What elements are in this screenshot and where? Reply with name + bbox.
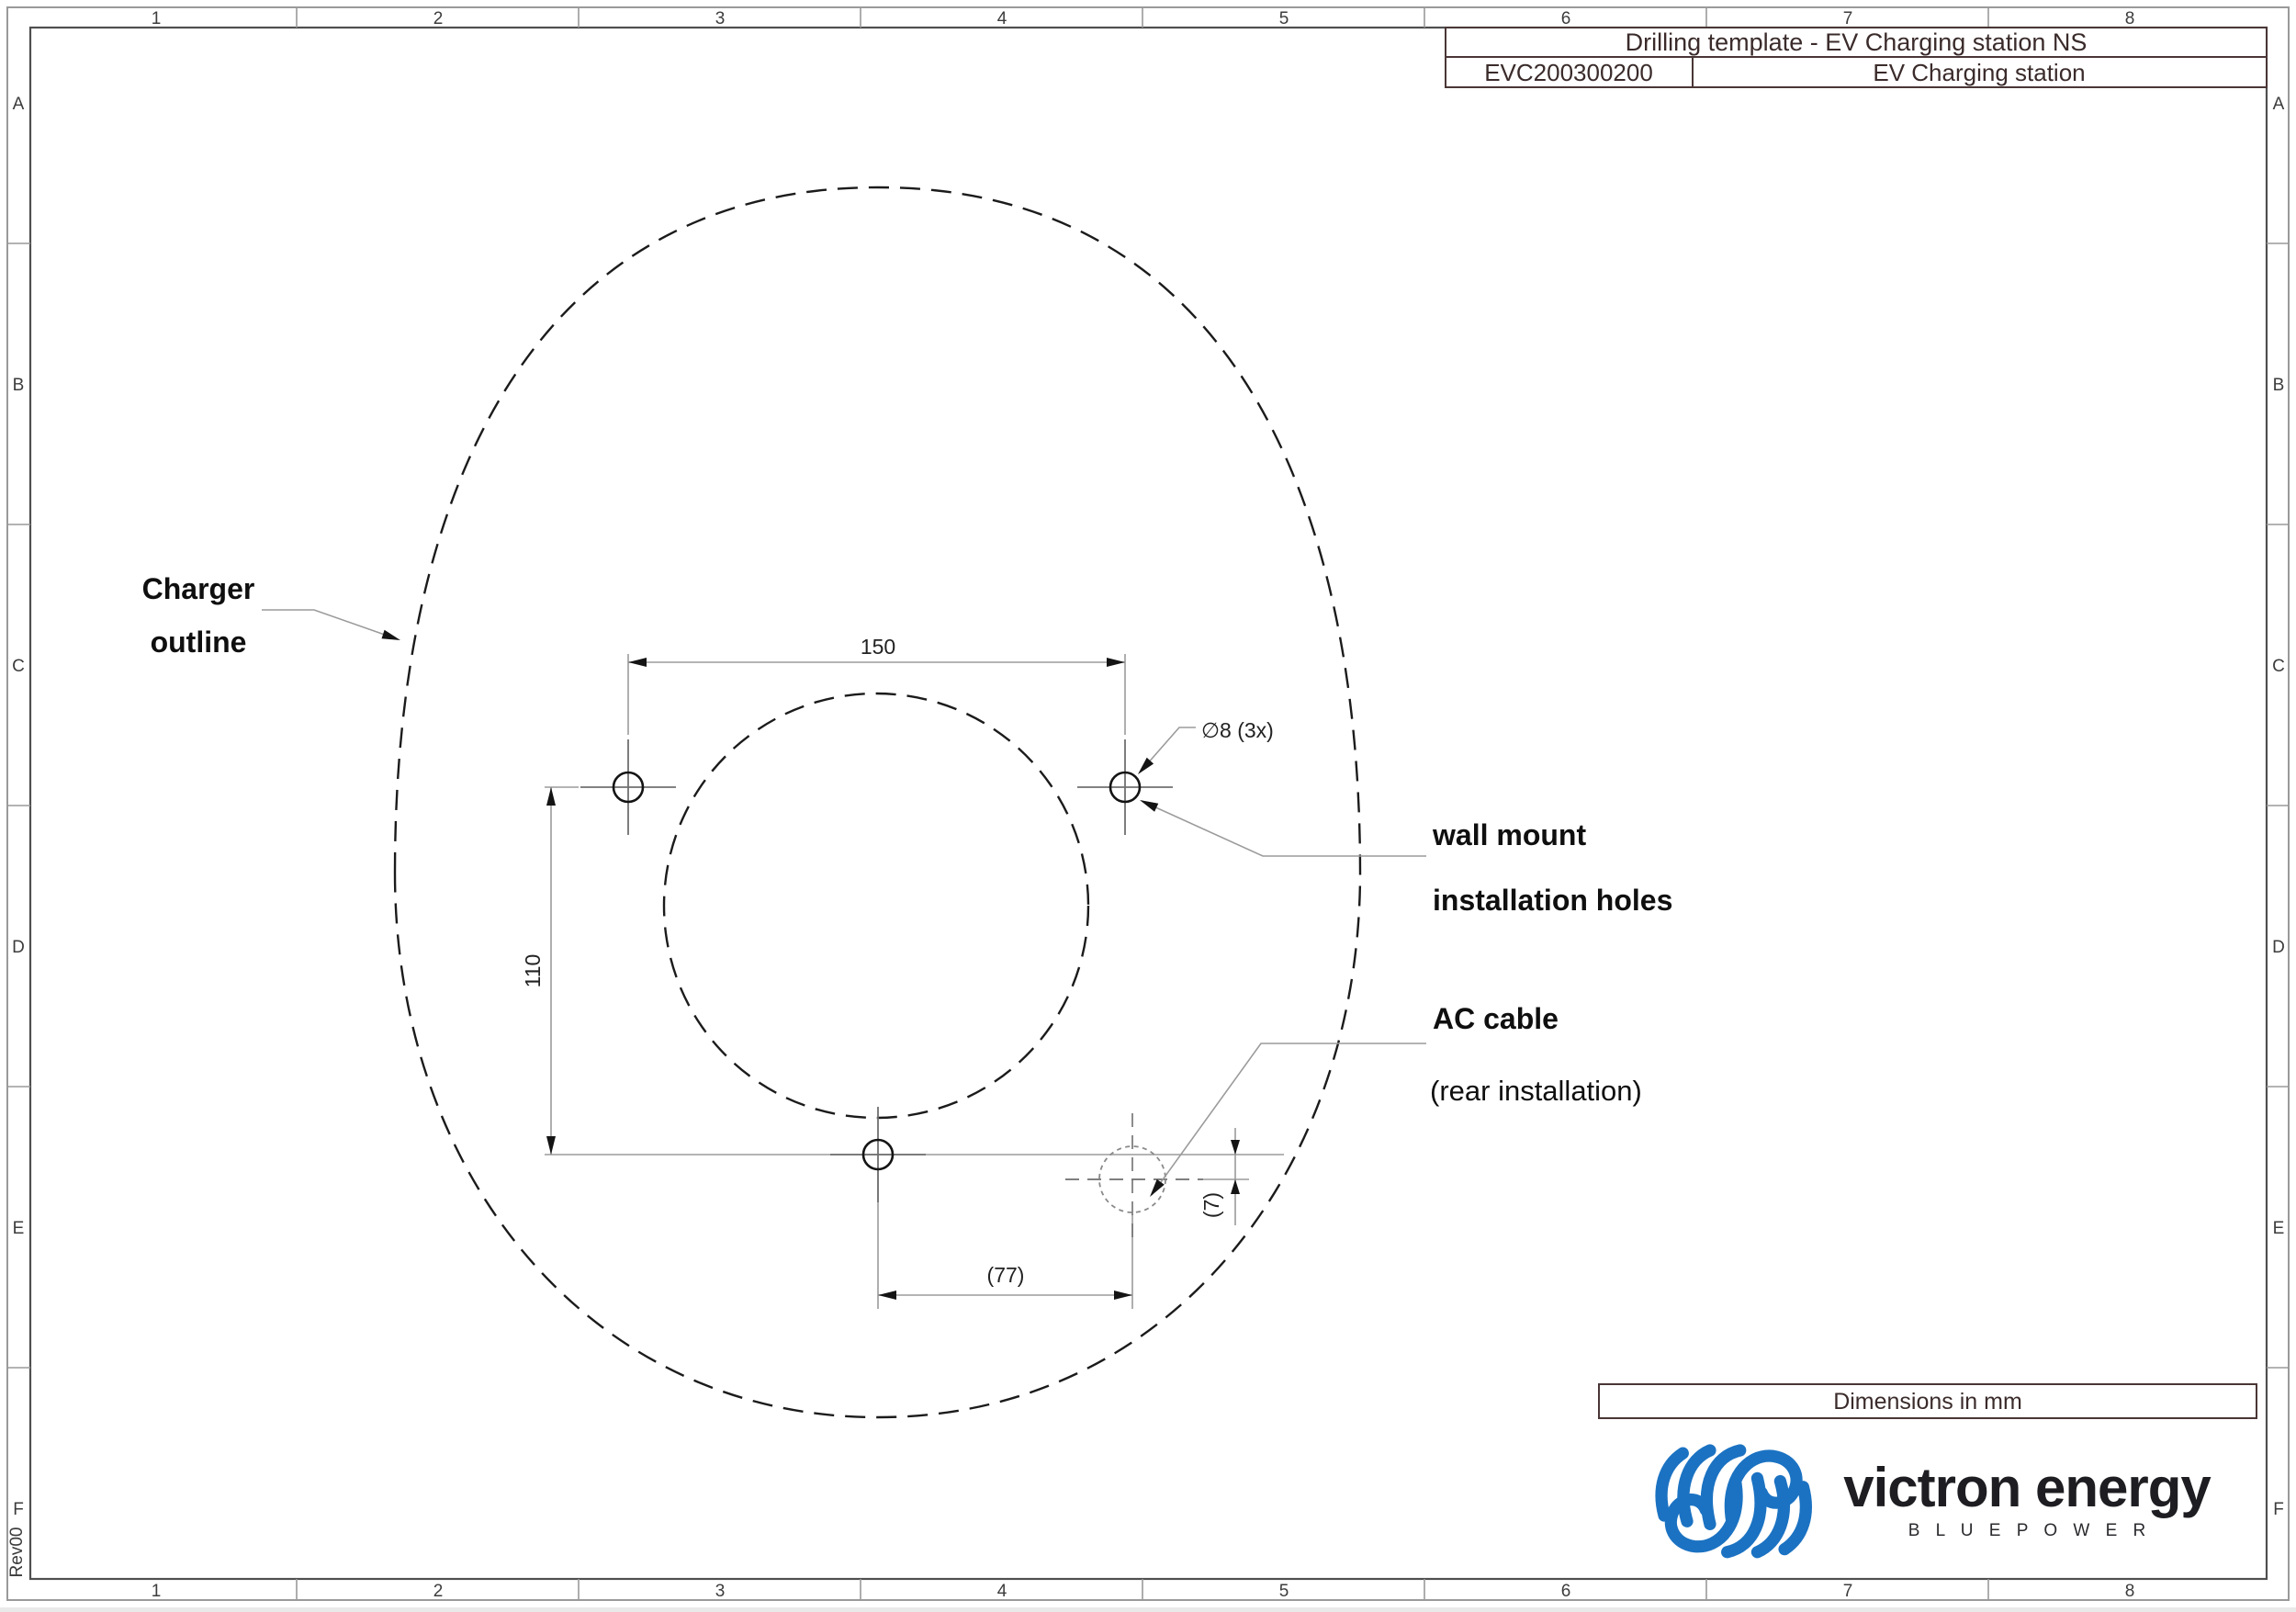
col-label: 3 [715,9,726,28]
col-label: 4 [997,9,1007,28]
row-label: C [12,657,25,676]
drawing-title: Drilling template - EV Charging station … [1626,28,2088,56]
row-label: F [13,1500,24,1519]
row-label: F [2273,1500,2284,1519]
row-label: B [13,376,25,395]
units-note: Dimensions in mm [1833,1389,2022,1415]
col-label: 7 [1843,9,1853,28]
col-label: 6 [1561,9,1571,28]
product-name: EV Charging station [1873,59,2085,86]
wall-mount-label-1: wall mount [1432,818,1586,851]
brand-name: victron energy [1843,1457,2212,1518]
col-label: 3 [715,1582,726,1601]
ac-cable-label-1: AC cable [1433,1002,1559,1035]
dim-hole-diameter: ∅8 (3x) [1201,718,1274,742]
dim-150: 150 [861,635,895,659]
charger-outline-label-1: Charger [142,572,255,605]
col-label: 8 [2125,9,2135,28]
ac-cable-label-2: (rear installation) [1430,1075,1642,1107]
row-label: E [13,1219,25,1238]
brand-tagline: B L U E P O W E R [1908,1521,2152,1540]
drilling-template-drawing: 1 2 3 4 5 6 7 8 1 2 3 4 5 6 7 8 A B C D … [0,0,2296,1607]
col-label: 1 [152,9,162,28]
dim-7: (7) [1199,1192,1223,1218]
title-block: Drilling template - EV Charging station … [1446,28,2267,87]
revision-label: Rev00 [7,1527,27,1578]
row-label: A [13,95,25,114]
col-label: 5 [1279,1582,1289,1601]
dim-77: (77) [987,1263,1025,1287]
part-number: EVC200300200 [1484,59,1653,86]
row-label: A [2273,95,2285,114]
row-label: C [2272,657,2285,676]
col-label: 4 [997,1582,1007,1601]
col-label: 7 [1843,1582,1853,1601]
col-label: 2 [433,1582,444,1601]
col-label: 6 [1561,1582,1571,1601]
col-label: 8 [2125,1582,2135,1601]
wall-mount-label-2: installation holes [1433,884,1672,917]
dim-110: 110 [521,954,545,988]
row-label: E [2273,1219,2285,1238]
charger-outline-label-2: outline [151,626,247,659]
drawing-sheet: 1 2 3 4 5 6 7 8 1 2 3 4 5 6 7 8 A B C D … [0,0,2296,1607]
col-label: 1 [152,1582,162,1601]
col-label: 2 [433,9,444,28]
units-note-box: Dimensions in mm [1599,1384,2257,1418]
row-label: D [2272,938,2285,957]
row-label: B [2273,376,2285,395]
col-label: 5 [1279,9,1289,28]
row-label: D [12,938,25,957]
